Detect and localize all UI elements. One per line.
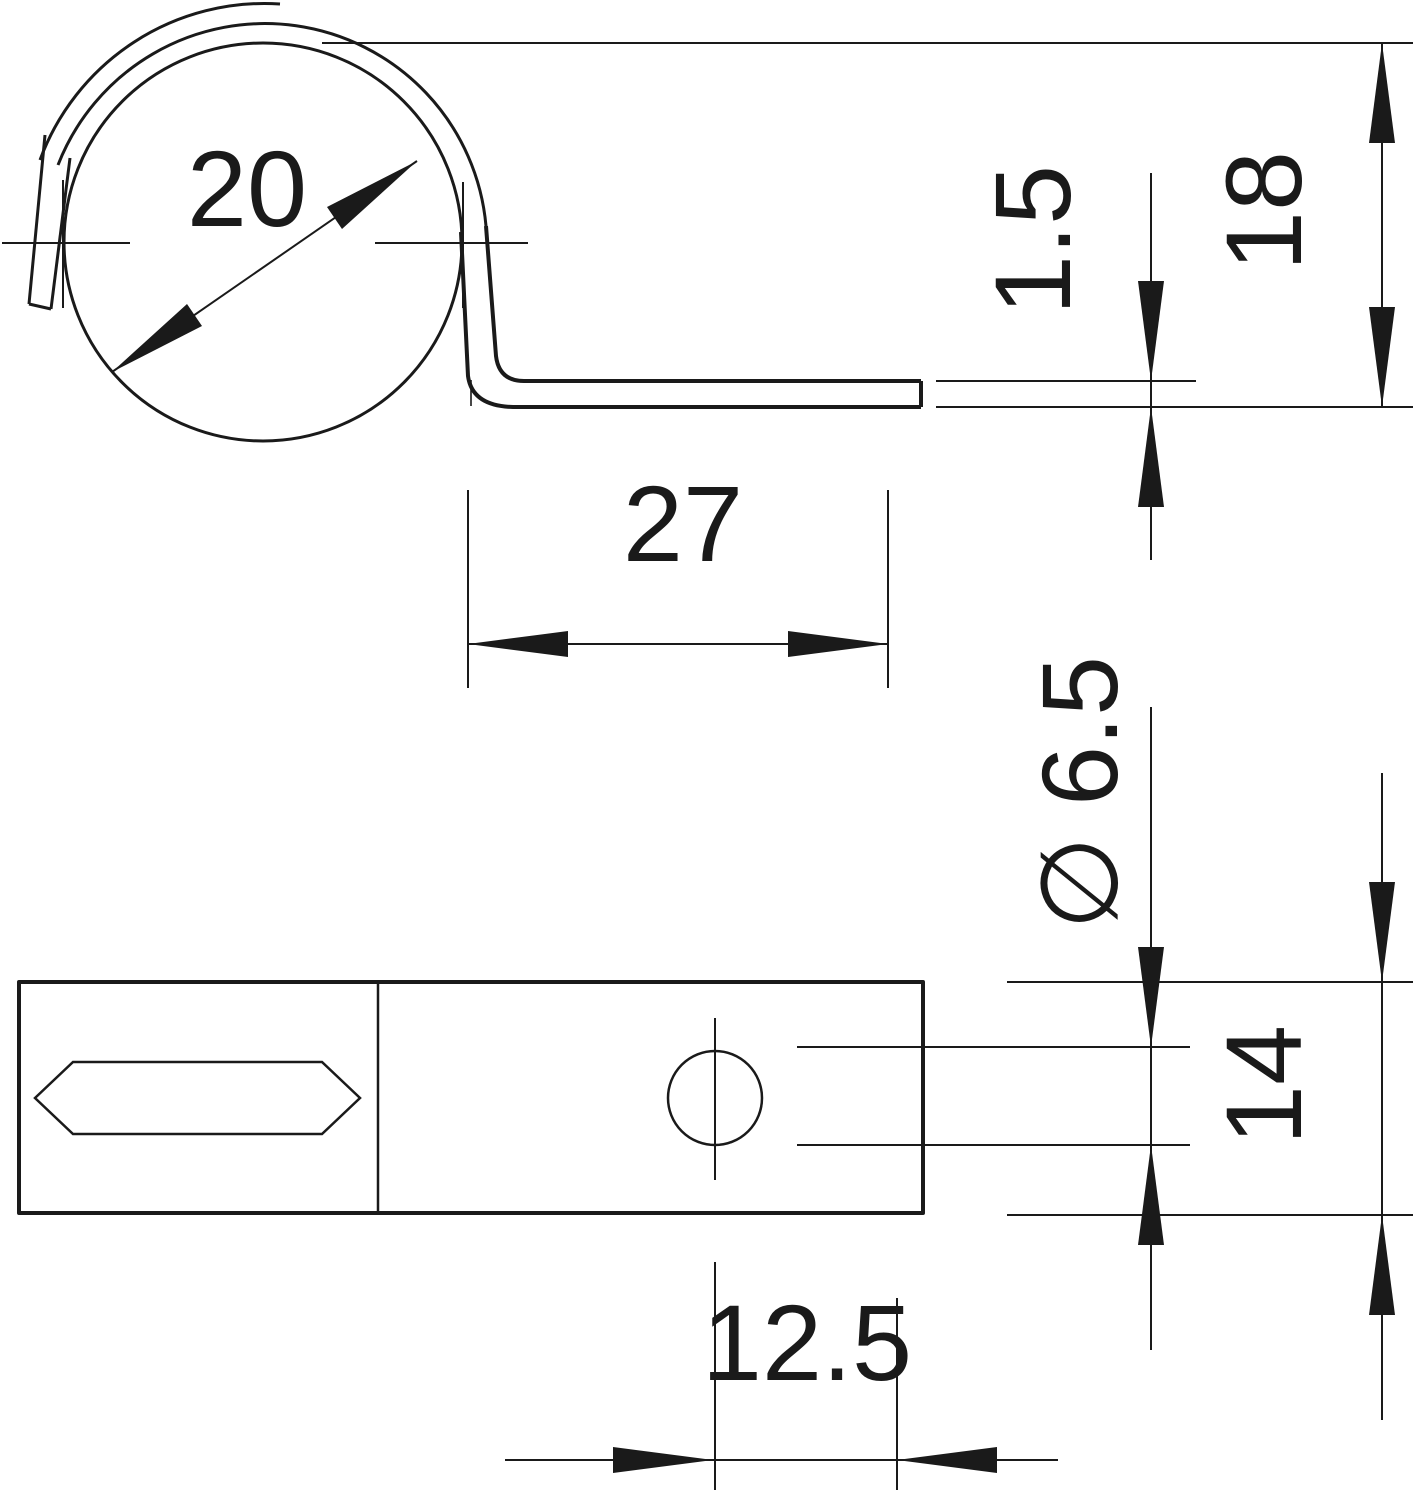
arrowhead-27-right xyxy=(788,631,888,657)
arrowhead-18-top xyxy=(1369,43,1395,143)
strip-slot xyxy=(35,1062,360,1134)
side-view-clip-profile xyxy=(2,3,921,441)
arrowhead-6-5-bottom xyxy=(1138,1145,1164,1245)
tail-end-cap xyxy=(29,304,51,309)
tail-inner-edge xyxy=(51,158,70,309)
dim-label-6-5: ∅ 6.5 xyxy=(1019,656,1140,930)
arrowhead-12-5-right xyxy=(897,1447,997,1473)
arrowhead-20-upper xyxy=(327,161,417,229)
dim-label-14: 14 xyxy=(1203,1025,1324,1145)
arrowhead-1-5-top xyxy=(1138,281,1164,381)
dim-label-27: 27 xyxy=(623,463,743,584)
technical-drawing-canvas: 20 27 1.5 18 xyxy=(0,0,1423,1500)
strip-outline xyxy=(19,982,923,1213)
arrowhead-12-5-left xyxy=(613,1447,713,1473)
dimension-hole-diameter-6-5: ∅ 6.5 xyxy=(797,656,1190,1350)
riser-and-foot-top-edge xyxy=(486,226,921,381)
dim-label-20: 20 xyxy=(187,128,307,249)
technical-drawing-page: 20 27 1.5 18 xyxy=(0,0,1423,1500)
dim-label-18: 18 xyxy=(1203,151,1324,271)
arrowhead-14-top xyxy=(1369,882,1395,982)
dimension-thickness-1-5: 1.5 xyxy=(936,165,1413,560)
dim-label-12-5: 12.5 xyxy=(702,1282,912,1403)
arrowhead-1-5-bottom xyxy=(1138,407,1164,507)
arrowhead-14-bottom xyxy=(1369,1215,1395,1315)
bottom-view-strip xyxy=(19,982,923,1490)
arrowhead-6-5-top xyxy=(1138,947,1164,1047)
dimension-hole-offset-12-5: 12.5 xyxy=(505,1282,1058,1490)
arrowhead-18-bottom xyxy=(1369,307,1395,407)
tail-outer-edge xyxy=(29,135,45,304)
dim-label-1-5: 1.5 xyxy=(972,165,1093,315)
arrowhead-27-left xyxy=(468,631,568,657)
dimension-loop-diameter-20: 20 xyxy=(112,128,417,372)
dimension-foot-length-27: 27 xyxy=(468,463,888,688)
arrowhead-20-lower xyxy=(112,304,202,372)
